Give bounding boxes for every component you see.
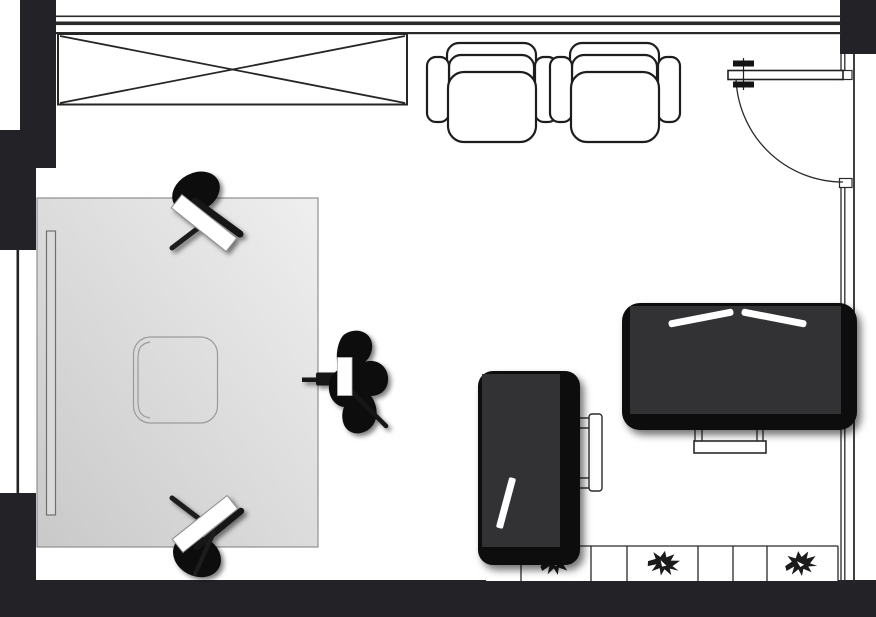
wardrobe[interactable] [58, 34, 407, 105]
door-leaf [728, 71, 843, 80]
window-left-mullion [17, 250, 20, 493]
desk-table-top [37, 198, 318, 547]
door-swing-arc [736, 75, 843, 182]
wall-left-lower [0, 493, 36, 585]
cabinet-top [482, 374, 560, 547]
floor-plan-canvas [0, 0, 876, 617]
bed[interactable] [622, 303, 857, 430]
wall-top-right-block [840, 0, 876, 54]
armchair-1[interactable] [427, 43, 557, 142]
floor-plan-svg [0, 0, 876, 617]
wall-left-upper [0, 130, 36, 250]
bed-mattress [630, 306, 841, 414]
door-hinge-bar-bottom [733, 82, 754, 88]
door-hinge-bar-top [733, 61, 754, 67]
bed-bench-seat [694, 441, 766, 453]
office-chair-backrest [338, 358, 353, 396]
armchair-2[interactable] [550, 43, 680, 142]
wall-bottom [0, 580, 876, 617]
wall-top-lines [56, 16, 841, 35]
cabinet[interactable] [478, 371, 580, 565]
door-top-right[interactable] [728, 58, 843, 182]
tucked-chair-backrest [589, 414, 602, 491]
desk-table[interactable] [37, 198, 318, 547]
wall-panel [47, 231, 56, 515]
door-jamb-bottom [840, 179, 853, 188]
